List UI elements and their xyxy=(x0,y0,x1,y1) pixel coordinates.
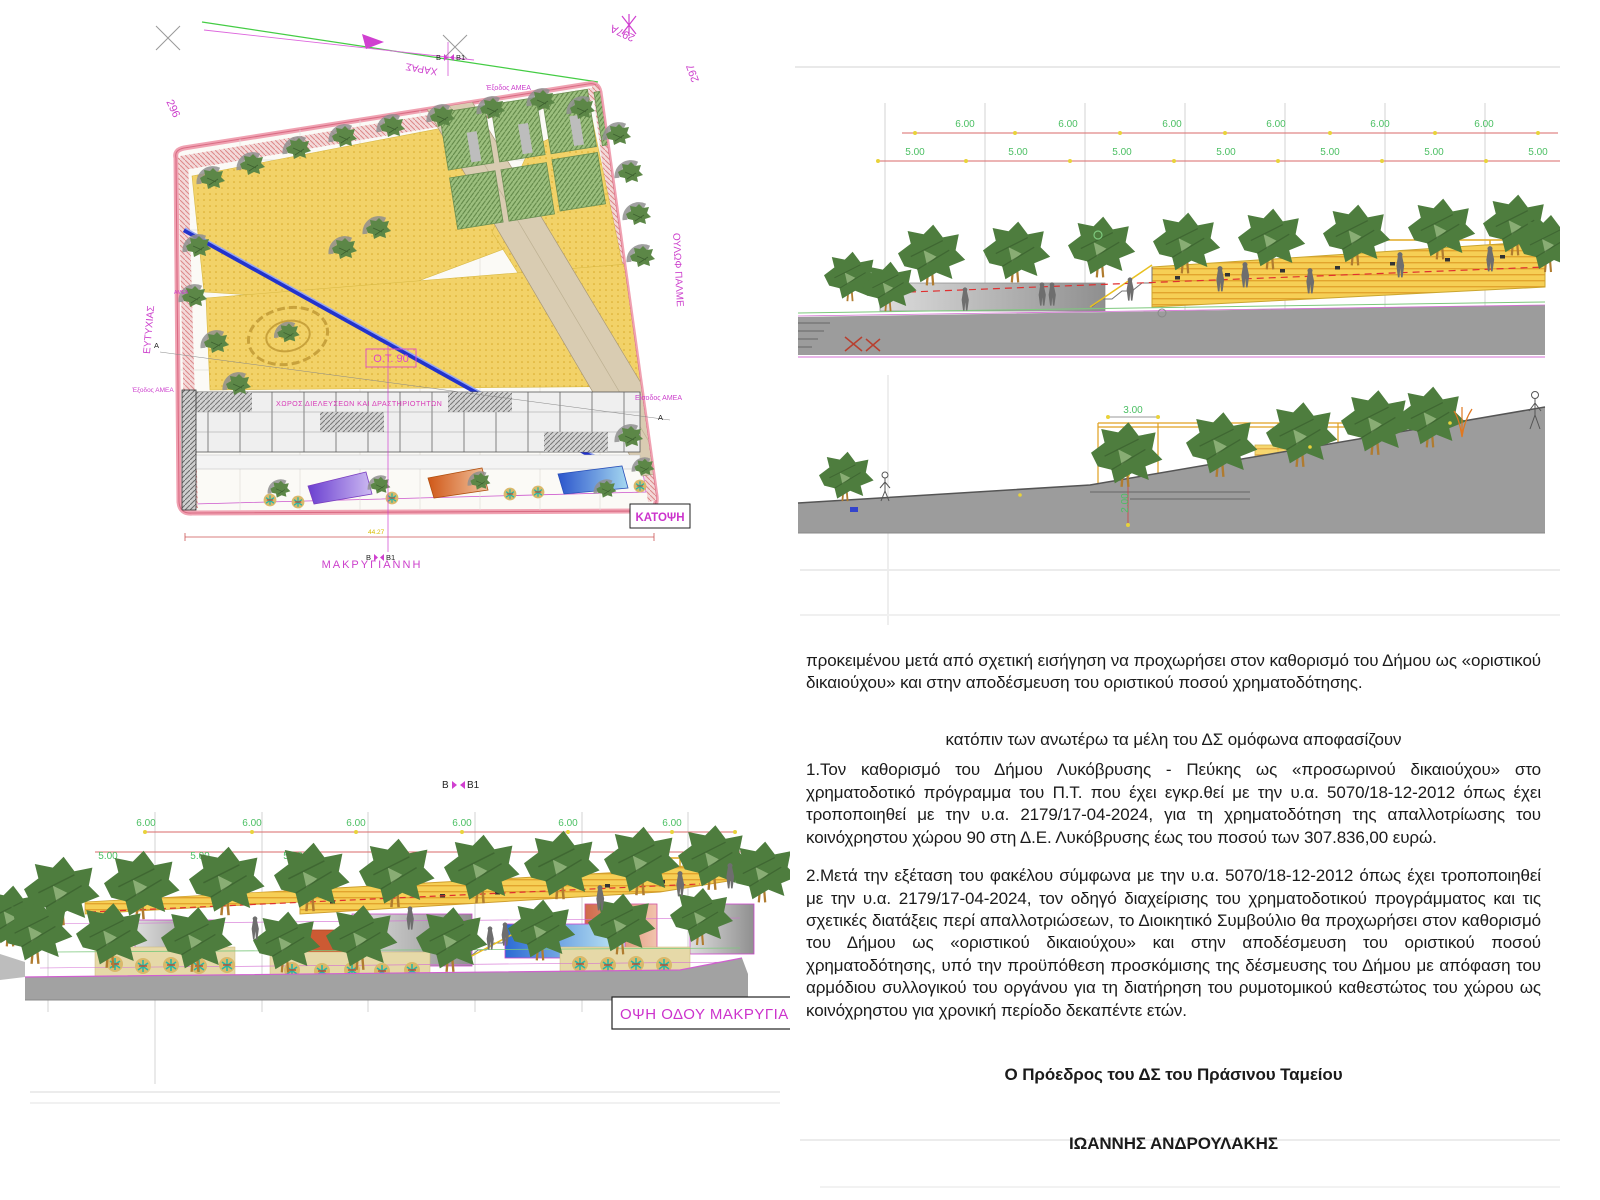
sections-drawing: 6.00 6.00 6.00 6.00 6.00 6.00 5.00 5.00 … xyxy=(790,55,1560,625)
amea-short-left: ΑΜΕΑ xyxy=(174,290,189,296)
svg-text:ΟΨΗ ΟΔΟΥ ΜΑΚΡΥΓΙΑΝ: ΟΨΗ ΟΔΟΥ ΜΑΚΡΥΓΙΑΝ xyxy=(620,1006,790,1023)
svg-text:ΚΑΤΟΨΗ: ΚΑΤΟΨΗ xyxy=(635,512,684,524)
svg-text:6.00: 6.00 xyxy=(1162,119,1182,130)
elevation-title-box: ΟΨΗ ΟΔΟΥ ΜΑΚΡΥΓΙΑΝ xyxy=(612,997,790,1029)
street-makrygianni: ΜΑΚΡΥΓΙΑΝΝΗ xyxy=(322,559,423,571)
svg-text:Α: Α xyxy=(658,413,663,422)
scan-rule xyxy=(800,614,1560,616)
site-plan-drawing: 44.27 ΧΑΡΑΣ ΕΥΤΥΧΙΑΣ ΟΥΛΩΦ ΠΑΛΜΕ ΜΑΚΡΥΓΙ… xyxy=(130,0,710,605)
svg-text:5.00: 5.00 xyxy=(98,851,118,862)
survey-lines xyxy=(156,14,636,82)
svg-text:5.00: 5.00 xyxy=(1320,147,1340,158)
dim-3m: 3.00 xyxy=(1123,405,1143,416)
svg-text:6.00: 6.00 xyxy=(136,818,156,829)
amea-exit-top: Έξοδος ΑΜΕΑ xyxy=(485,85,531,92)
street-charas: ΧΑΡΑΣ xyxy=(405,60,439,76)
svg-text:Β: Β xyxy=(436,53,441,62)
amea-exit-left: Έξοδος ΑΜΕΑ xyxy=(131,387,174,394)
dim-2m: 2.00 xyxy=(1120,493,1131,513)
scan-rule xyxy=(800,569,1560,571)
section-upper: 6.00 6.00 6.00 6.00 6.00 6.00 5.00 5.00 … xyxy=(798,103,1560,357)
svg-text:Β1: Β1 xyxy=(386,553,395,562)
svg-text:6.00: 6.00 xyxy=(558,818,578,829)
svg-text:Β1: Β1 xyxy=(456,53,465,62)
block-296: 296 xyxy=(163,98,182,120)
street-elevation-drawing: Β Β1 6.00 6.00 6.00 6.00 6.00 6.00 5.00 … xyxy=(0,762,790,1092)
svg-text:5.00: 5.00 xyxy=(1008,147,1028,158)
elevation-marker: Β Β1 xyxy=(442,780,480,791)
svg-text:6.00: 6.00 xyxy=(1474,119,1494,130)
svg-text:Α: Α xyxy=(154,341,159,350)
block-297: 297 xyxy=(684,62,702,83)
svg-text:5.00: 5.00 xyxy=(1424,147,1444,158)
svg-text:6.00: 6.00 xyxy=(242,818,262,829)
svg-text:Β: Β xyxy=(366,553,371,562)
document-page: 44.27 ΧΑΡΑΣ ΕΥΤΥΧΙΑΣ ΟΥΛΩΦ ΠΑΛΜΕ ΜΑΚΡΥΓΙ… xyxy=(0,0,1600,1200)
decision-intro: προκειμένου μετά από σχετική εισήγηση να… xyxy=(806,650,1541,695)
signature-role: Ο Πρόεδρος του ΔΣ του Πράσινου Ταμείου xyxy=(806,1064,1541,1086)
block-297a: 297Α xyxy=(608,22,637,44)
ot-90-label: Ο.Τ. 90 xyxy=(373,353,408,365)
scan-rule xyxy=(795,66,1560,68)
svg-text:5.00: 5.00 xyxy=(1112,147,1132,158)
plan-total-dim: 44.27 xyxy=(368,529,385,536)
svg-text:Β: Β xyxy=(442,780,449,791)
decision-item-2: 2.Μετά την εξέταση του φακέλου σύμφωνα μ… xyxy=(806,865,1541,1022)
signature-name: ΙΩΑΝΝΗΣ ΑΝΔΡΟΥΛΑΚΗΣ xyxy=(806,1133,1541,1155)
section-marker-b-top: Β Β1 xyxy=(436,53,465,62)
scan-rule xyxy=(30,1102,780,1104)
svg-text:6.00: 6.00 xyxy=(452,818,472,829)
decision-heading: κατόπιν των ανωτέρω τα μέλη του ΔΣ ομόφω… xyxy=(806,729,1541,751)
svg-text:Β1: Β1 xyxy=(467,780,480,791)
decision-text-block: προκειμένου μετά από σχετική εισήγηση να… xyxy=(806,650,1541,1155)
svg-text:6.00: 6.00 xyxy=(1058,119,1078,130)
svg-text:6.00: 6.00 xyxy=(1266,119,1286,130)
section-lower: 3.00 2.00 xyxy=(798,375,1545,625)
plan-title-box: ΚΑΤΟΨΗ xyxy=(630,504,690,528)
decision-item-1: 1.Τον καθορισμό του Δήμου Λυκόβρυσης - Π… xyxy=(806,759,1541,849)
amea-entry-right: Είσοδος ΑΜΕΑ xyxy=(635,394,682,402)
svg-text:6.00: 6.00 xyxy=(1370,119,1390,130)
svg-text:6.00: 6.00 xyxy=(662,818,682,829)
street-oulof-palme: ΟΥΛΩΦ ΠΑΛΜΕ xyxy=(670,233,685,308)
svg-text:5.00: 5.00 xyxy=(905,147,925,158)
scan-rule xyxy=(820,1186,1560,1188)
svg-text:5.00: 5.00 xyxy=(1216,147,1236,158)
svg-text:6.00: 6.00 xyxy=(955,119,975,130)
area-label: ΧΩΡΟΣ ΔΙΕΛΕΥΣΕΩΝ ΚΑΙ ΔΡΑΣΤΗΡΙΟΤΗΤΩΝ xyxy=(276,399,442,408)
svg-text:5.00: 5.00 xyxy=(1528,147,1548,158)
svg-text:6.00: 6.00 xyxy=(346,818,366,829)
scan-rule xyxy=(30,1091,780,1093)
